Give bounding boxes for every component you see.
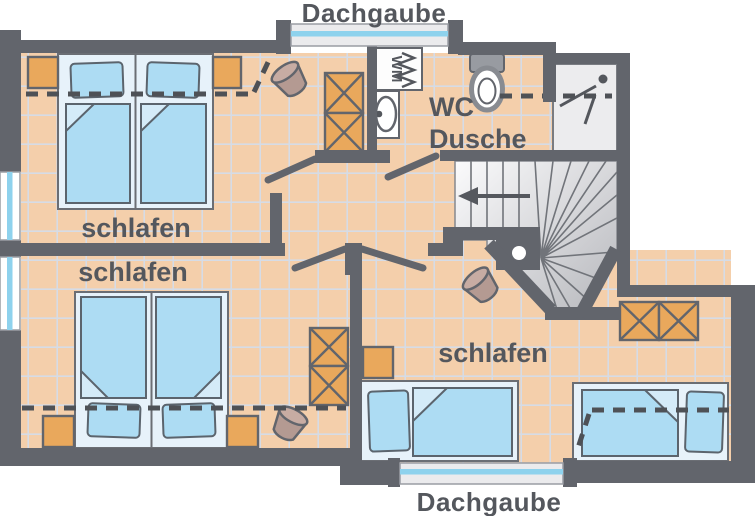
dormer-window-bottom (400, 463, 563, 484)
bed-single-right (573, 383, 728, 461)
label-bedroom-bottom-right: schlafen (438, 338, 548, 368)
wardrobe-hall (325, 73, 363, 152)
pillow (368, 390, 410, 451)
wardrobe-bottom-right (620, 302, 698, 340)
pillow (685, 391, 724, 452)
bed-single-left (361, 381, 518, 461)
floor-plan: Dachgaube Dachgaube schlafen schlafen sc… (0, 0, 755, 516)
floor-plan-canvas: Dachgaube Dachgaube schlafen schlafen sc… (0, 0, 755, 516)
label-dormer-top: Dachgaube (302, 0, 447, 28)
dresser (363, 347, 393, 378)
bed-double-bottom-left (75, 292, 228, 448)
label-dormer-bottom: Dachgaube (417, 487, 562, 516)
stair-newel-post (512, 246, 526, 260)
label-bedroom-top-left: schlafen (81, 213, 191, 243)
window-left-top (0, 172, 20, 240)
label-dusche: Dusche (429, 124, 527, 154)
toilet (470, 54, 504, 110)
label-wc: WC (429, 92, 474, 122)
shower-stall (553, 64, 617, 152)
window-left-bottom (0, 257, 20, 330)
label-bedroom-bottom-left: schlafen (78, 257, 188, 287)
bed-double-top-left (58, 54, 213, 209)
wardrobe-bottom-left (310, 328, 348, 405)
label-washing-machine: WM (388, 56, 405, 83)
